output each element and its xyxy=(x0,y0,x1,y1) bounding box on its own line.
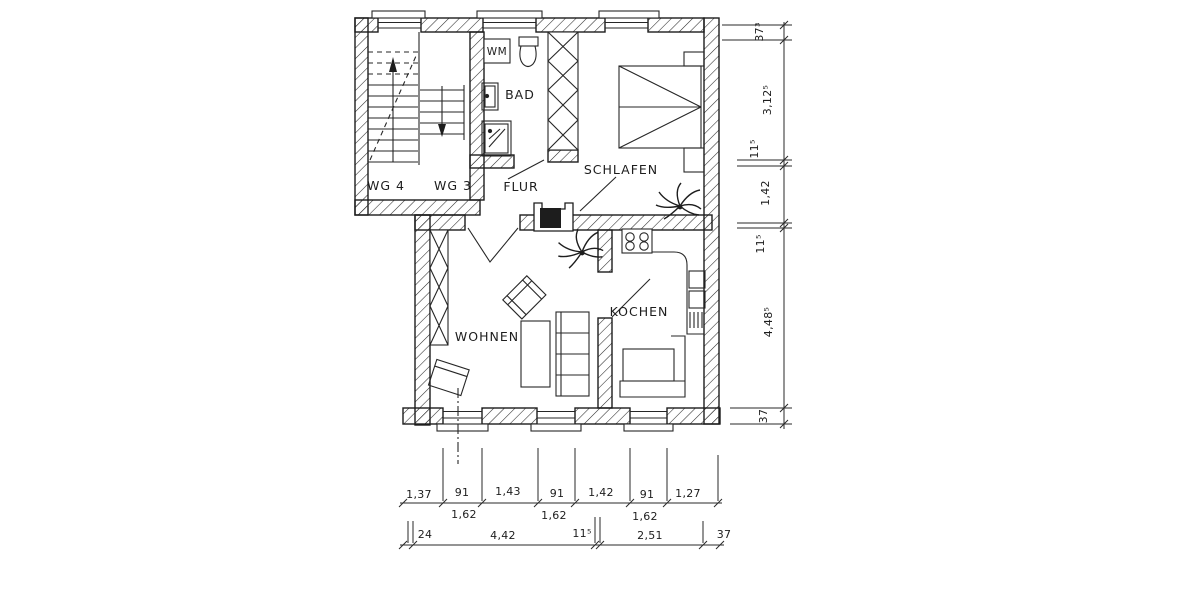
sofa-icon xyxy=(556,312,589,396)
wg3-label: WG 3 xyxy=(434,178,472,193)
plant-icon xyxy=(656,183,701,219)
dim-right-4: 11⁵ xyxy=(754,234,767,253)
dim-b1-0: 1,37 xyxy=(406,488,432,501)
dim-right-1: 3,12⁵ xyxy=(761,85,774,115)
staircase xyxy=(368,32,464,165)
dim-right-0: 37³ xyxy=(753,22,766,41)
dim-b2-0: 24 xyxy=(418,528,433,541)
dim-b2-4: 37 xyxy=(717,528,732,541)
dim-b1-1: 91 xyxy=(455,486,470,499)
flur-wohnen-door xyxy=(468,228,518,262)
nightstand xyxy=(684,148,704,172)
wm-label: WM xyxy=(487,46,507,58)
kitchen-bench xyxy=(620,336,685,397)
wg4-label: WG 4 xyxy=(367,178,405,193)
drain-rack xyxy=(690,312,702,328)
stair-arrow-down-icon xyxy=(438,124,446,137)
dim-b1-3: 91 xyxy=(550,487,565,500)
dimension-chain-right: 37³ 3,12⁵ 11⁵ 1,42 11⁵ 4,48⁵ 37 xyxy=(722,21,792,429)
armchair-icon xyxy=(429,359,470,395)
dim-b1-5: 91 xyxy=(640,488,655,501)
dimension-chain-bottom: 1,37 91 1,43 91 1,42 91 1,27 1,62 1,62 1… xyxy=(399,448,731,549)
coffee-table xyxy=(521,321,550,387)
bed-icon xyxy=(619,66,701,148)
dim-right-2: 11⁵ xyxy=(748,139,761,158)
kitchen-sink xyxy=(689,291,705,308)
dim-b2-3: 2,51 xyxy=(637,529,663,542)
dim-right-6: 37 xyxy=(757,409,770,424)
flur-label: FLUR xyxy=(503,179,538,194)
dim-b1s-0: 1,62 xyxy=(451,508,477,521)
dim-b2-1: 4,42 xyxy=(490,529,516,542)
chimney-block xyxy=(534,203,573,231)
floor-plan-drawing: WG 4 WG 3 WM BAD FLUR SCHLAFEN WOHNEN KO… xyxy=(0,0,1200,600)
kochen-label: KOCHEN xyxy=(610,304,669,319)
nightstand xyxy=(684,52,704,66)
stove-icon xyxy=(622,229,652,253)
dim-b2-2: 11⁵ xyxy=(572,527,591,540)
bedroom-furniture xyxy=(619,52,704,219)
armchair-icon xyxy=(503,276,546,319)
bad-label: BAD xyxy=(505,87,535,102)
wohnen-label: WOHNEN xyxy=(455,329,519,344)
floor-plan-page: WG 4 WG 3 WM BAD FLUR SCHLAFEN WOHNEN KO… xyxy=(0,0,1200,600)
toilet-icon xyxy=(519,37,538,67)
dim-b1s-2: 1,62 xyxy=(632,510,658,523)
dim-right-3: 1,42 xyxy=(759,180,772,206)
stair-arrow-up-icon xyxy=(389,57,397,72)
dim-b1-4: 1,42 xyxy=(588,486,614,499)
kitchen-sink xyxy=(689,271,705,288)
shower-icon xyxy=(482,121,511,156)
dim-b1s-1: 1,62 xyxy=(541,509,567,522)
kitchen-counter xyxy=(652,252,704,334)
kitchen-table xyxy=(623,349,674,381)
dim-b1-6: 1,27 xyxy=(675,487,701,500)
dim-right-5: 4,48⁵ xyxy=(762,307,775,337)
schlafen-door xyxy=(580,177,616,211)
dim-b1-2: 1,43 xyxy=(495,485,521,498)
schlafen-label: SCHLAFEN xyxy=(584,162,658,177)
